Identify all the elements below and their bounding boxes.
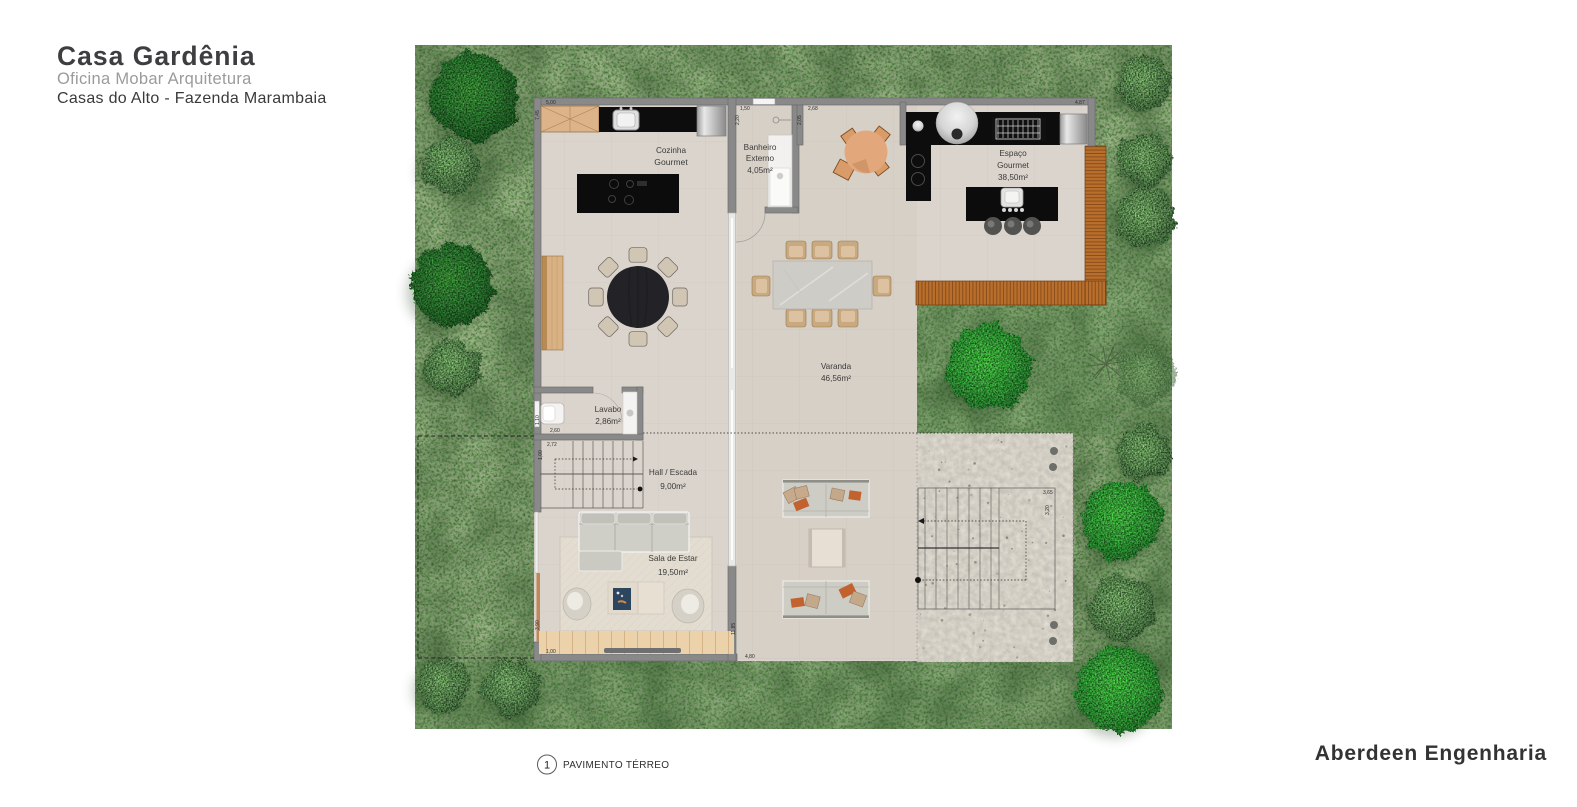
svg-text:2,60: 2,60 xyxy=(550,428,560,434)
svg-text:2,05: 2,05 xyxy=(797,115,803,125)
svg-text:PAVIMENTO TÉRREO: PAVIMENTO TÉRREO xyxy=(563,758,669,771)
svg-text:3,90: 3,90 xyxy=(535,620,541,630)
svg-text:Gourmet: Gourmet xyxy=(654,157,688,167)
svg-text:4,87: 4,87 xyxy=(1075,100,1085,106)
svg-text:7,45: 7,45 xyxy=(535,110,541,120)
svg-text:3,65: 3,65 xyxy=(1043,490,1053,496)
svg-text:Sala de Estar: Sala de Estar xyxy=(648,554,697,563)
svg-text:Varanda: Varanda xyxy=(821,362,852,371)
svg-text:4,80: 4,80 xyxy=(745,654,755,660)
svg-text:Banheiro: Banheiro xyxy=(744,143,777,152)
svg-text:1: 1 xyxy=(544,760,550,772)
svg-text:Externo: Externo xyxy=(746,154,775,163)
svg-text:Espaço: Espaço xyxy=(999,149,1027,158)
svg-text:9,00m²: 9,00m² xyxy=(660,482,686,491)
svg-text:Oficina Mobar Arquitetura: Oficina Mobar Arquitetura xyxy=(57,70,252,88)
svg-text:Casas do Alto - Fazenda Maramb: Casas do Alto - Fazenda Marambaia xyxy=(57,90,327,107)
svg-text:5,00: 5,00 xyxy=(546,100,556,106)
svg-text:19,50m²: 19,50m² xyxy=(658,568,688,577)
svg-text:4,05m²: 4,05m² xyxy=(747,166,773,175)
svg-text:Cozinha: Cozinha xyxy=(656,146,686,155)
svg-text:2,20: 2,20 xyxy=(735,115,741,125)
svg-text:2,72: 2,72 xyxy=(547,442,557,448)
svg-text:3,20: 3,20 xyxy=(1045,505,1051,515)
svg-text:2,68: 2,68 xyxy=(808,106,818,112)
svg-text:Aberdeen Engenharia: Aberdeen Engenharia xyxy=(1315,742,1547,765)
svg-text:Hall / Escada: Hall / Escada xyxy=(649,468,698,477)
svg-text:Casa Gardênia: Casa Gardênia xyxy=(57,41,256,71)
svg-text:46,56m²: 46,56m² xyxy=(821,374,851,383)
svg-text:1,10: 1,10 xyxy=(535,415,541,425)
svg-text:1,00: 1,00 xyxy=(538,450,544,460)
svg-text:11,85: 11,85 xyxy=(731,623,737,635)
svg-text:1,00: 1,00 xyxy=(546,649,556,655)
svg-text:1,50: 1,50 xyxy=(740,106,750,112)
svg-text:Gourmet: Gourmet xyxy=(997,161,1030,170)
svg-text:38,50m²: 38,50m² xyxy=(998,173,1028,182)
svg-text:2,86m²: 2,86m² xyxy=(595,417,621,426)
